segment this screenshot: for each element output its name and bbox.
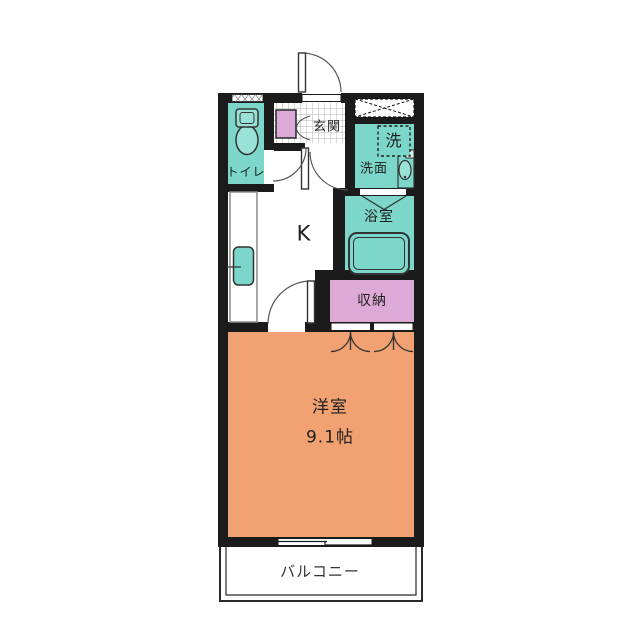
toilet-window — [232, 95, 263, 102]
entrance-door — [299, 53, 342, 92]
bathroom-label: 浴室 — [364, 210, 394, 224]
washer-label: 洗 — [385, 133, 402, 149]
kitchen-sink-icon — [234, 247, 254, 285]
toilet-icon — [236, 109, 258, 155]
kitchen-counter — [226, 192, 257, 322]
bathtub-icon — [349, 233, 409, 274]
toilet-label: トイレ — [226, 166, 265, 178]
kitchen-label: K — [297, 224, 312, 245]
entrance-threshold — [302, 95, 341, 102]
western-room-area: 9.1帖 — [306, 430, 354, 447]
washroom-label: 洗面 — [360, 163, 388, 176]
entrance-label: 玄関 — [313, 121, 341, 134]
western-room-label: 洋室 — [312, 400, 348, 417]
balcony-label: バルコニー — [280, 565, 360, 580]
meter-box — [355, 99, 414, 117]
closet-label: 収納 — [357, 294, 387, 308]
bathroom-doorway — [360, 189, 406, 195]
shoe-cabinet — [276, 110, 296, 138]
floorplan-canvas: トイレ 玄関 洗 洗面 浴室 K 収納 洋室 9.1帖 バルコニー — [0, 0, 640, 640]
floorplan-drawing — [0, 0, 640, 640]
balcony-sliding-window — [278, 539, 372, 546]
